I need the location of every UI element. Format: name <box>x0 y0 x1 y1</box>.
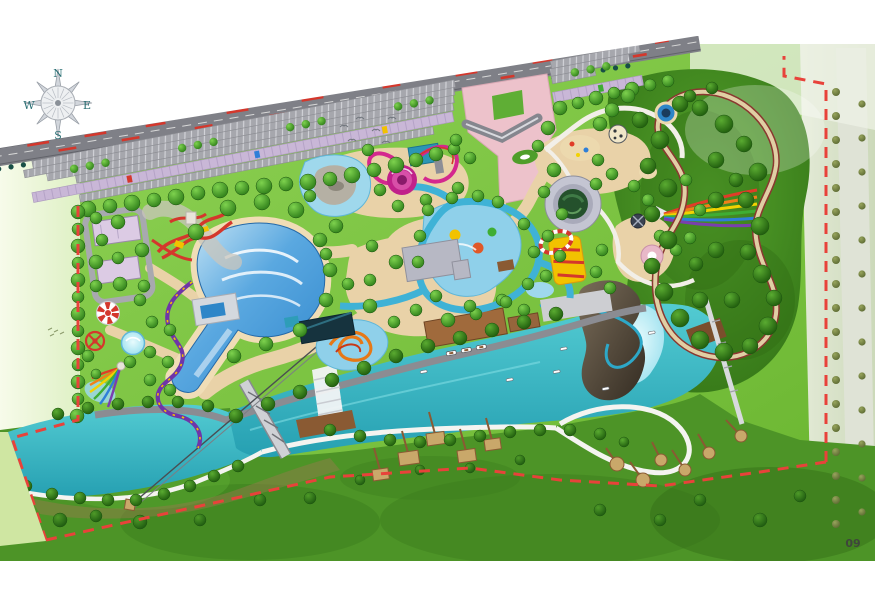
page-number: 09 <box>845 537 860 550</box>
compass-label-e: E <box>83 99 91 112</box>
ring-pool-center <box>662 109 671 118</box>
hill-fog <box>685 85 825 175</box>
bottom-margin <box>0 561 875 614</box>
compass-label-s: S <box>54 129 62 142</box>
round-kids-pool <box>122 332 145 355</box>
compass-label-n: N <box>53 67 63 80</box>
map-canvas: N S W E 09 <box>0 0 875 614</box>
master-plan-svg: N S W E 09 <box>0 0 875 614</box>
compass-label-w: W <box>23 99 35 112</box>
carousel <box>97 302 120 325</box>
meadow-texture <box>340 456 520 500</box>
